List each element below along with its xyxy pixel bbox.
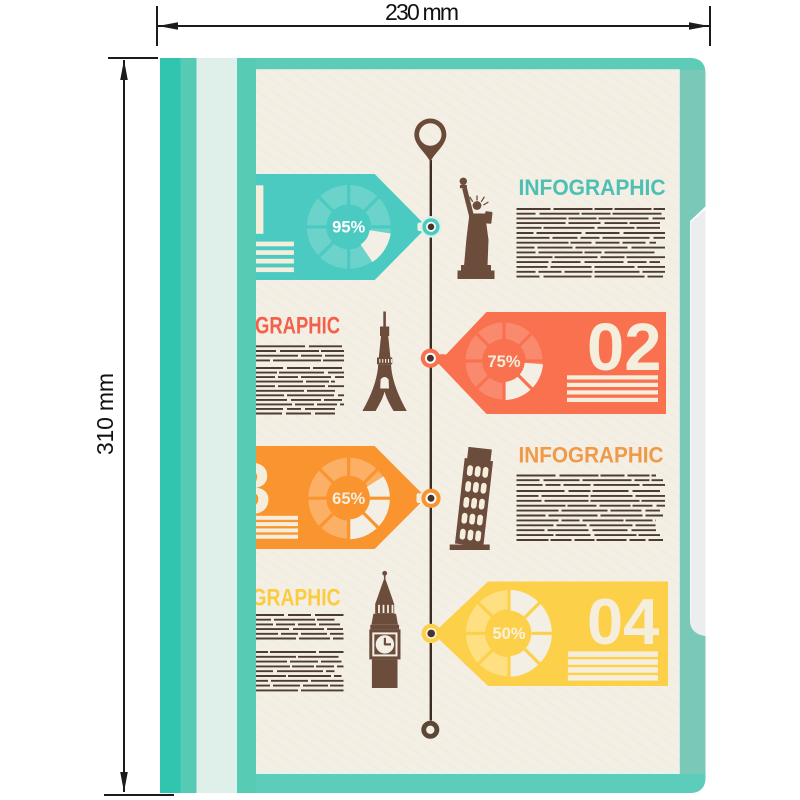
svg-text:65%: 65% [332,490,365,508]
svg-text:GRAPHIC: GRAPHIC [252,585,341,612]
svg-text:95%: 95% [332,219,365,237]
svg-text:02: 02 [587,310,662,385]
svg-text:50%: 50% [492,625,525,643]
svg-text:75%: 75% [487,353,520,371]
svg-text:INFOGRAPHIC: INFOGRAPHIC [519,175,666,200]
svg-text:GRAPHIC: GRAPHIC [255,313,340,340]
svg-text:04: 04 [587,585,659,658]
svg-text:INFOGRAPHIC: INFOGRAPHIC [519,443,664,468]
svg-text:310 mm: 310 mm [92,373,118,455]
svg-text:230 mm: 230 mm [385,0,459,25]
